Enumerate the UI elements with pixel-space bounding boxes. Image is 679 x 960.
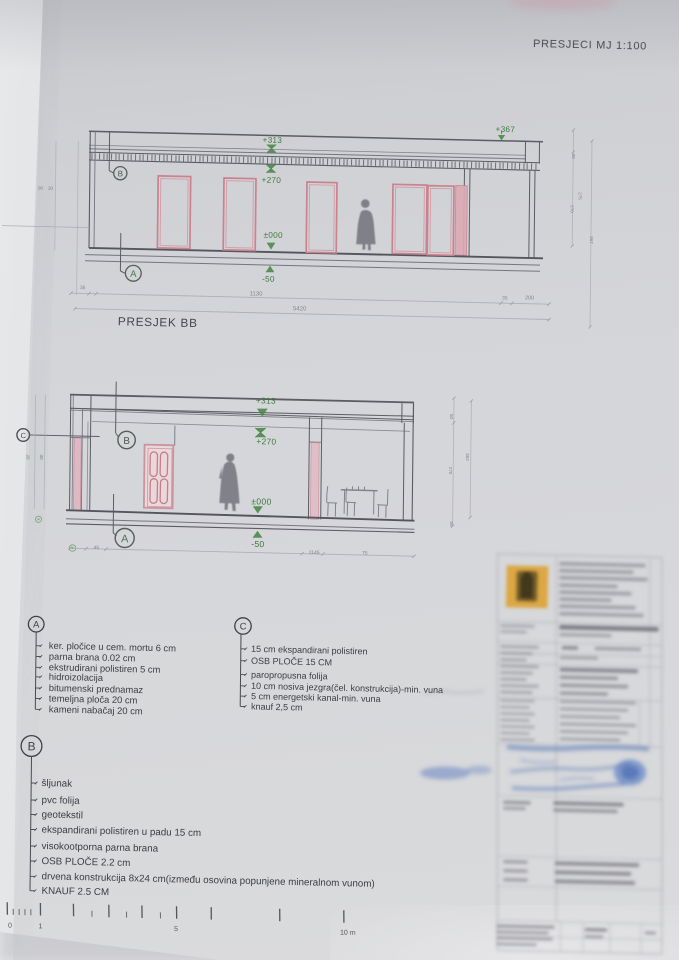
svg-text:90: 90 [38, 186, 44, 191]
svg-text:OSB PLOČE 2.2 cm: OSB PLOČE 2.2 cm [41, 856, 130, 869]
svg-text:1145: 1145 [308, 550, 319, 556]
svg-text:PRESJEK BB: PRESJEK BB [118, 314, 198, 330]
svg-text:270: 270 [448, 467, 453, 475]
svg-text:B: B [27, 739, 35, 753]
svg-text:15 cm ekspandirani polistiren: 15 cm ekspandirani polistiren [251, 644, 368, 657]
svg-text:pvc folija: pvc folija [41, 795, 80, 807]
svg-text:-50: -50 [262, 275, 275, 284]
svg-text:75: 75 [362, 551, 368, 557]
svg-text:±000: ±000 [251, 496, 271, 506]
svg-text:C: C [20, 431, 26, 440]
svg-text:10 m: 10 m [340, 930, 356, 937]
svg-text:362: 362 [465, 453, 470, 461]
svg-text:90: 90 [571, 153, 576, 159]
svg-text:-50: -50 [251, 539, 265, 549]
svg-text:35: 35 [80, 285, 86, 291]
svg-text:5: 5 [174, 926, 178, 933]
svg-text:+313: +313 [262, 136, 282, 145]
svg-text:±000: ±000 [263, 231, 283, 240]
svg-text:B: B [123, 436, 130, 447]
svg-text:B: B [118, 169, 124, 178]
svg-text:šljunak: šljunak [41, 778, 72, 790]
svg-text:30: 30 [39, 454, 44, 460]
svg-text:50: 50 [449, 414, 454, 420]
svg-text:knauf 2,5 cm: knauf 2,5 cm [251, 701, 303, 712]
svg-text:A: A [121, 533, 129, 545]
svg-text:5420: 5420 [293, 306, 307, 312]
svg-text:30: 30 [48, 186, 54, 191]
svg-text:20: 20 [26, 454, 31, 460]
svg-text:45: 45 [93, 545, 99, 551]
svg-text:1: 1 [38, 923, 42, 930]
svg-text:+367: +367 [495, 125, 515, 134]
svg-text:kameni nabačaj 20 cm: kameni nabačaj 20 cm [49, 703, 143, 716]
svg-text:PRESJECI MJ 1:100: PRESJECI MJ 1:100 [533, 38, 647, 53]
svg-text:+270: +270 [256, 436, 276, 446]
svg-text:35: 35 [502, 296, 508, 302]
svg-text:A: A [33, 620, 40, 631]
svg-text:C: C [239, 621, 246, 632]
svg-text:+313: +313 [256, 395, 276, 405]
svg-text:visokootporna parna brana: visokootporna parna brana [41, 841, 158, 855]
svg-text:0: 0 [8, 923, 12, 930]
svg-text:275: 275 [578, 192, 583, 200]
svg-text:paropropusna folija: paropropusna folija [251, 670, 328, 682]
svg-text:+270: +270 [261, 176, 281, 185]
svg-text:367: 367 [589, 236, 594, 244]
svg-text:ekspandirani polistiren u padu: ekspandirani polistiren u padu 15 cm [41, 825, 201, 840]
svg-text:OSB PLOČE 15 CM: OSB PLOČE 15 CM [251, 656, 332, 668]
svg-text:KNAUF 2.5 CM: KNAUF 2.5 CM [41, 886, 109, 899]
svg-text:200: 200 [525, 295, 534, 301]
svg-text:50: 50 [449, 521, 454, 527]
svg-text:270: 270 [570, 205, 575, 213]
svg-text:A: A [130, 269, 137, 280]
svg-text:geotekstil: geotekstil [41, 810, 83, 822]
svg-text:1130: 1130 [249, 291, 263, 297]
